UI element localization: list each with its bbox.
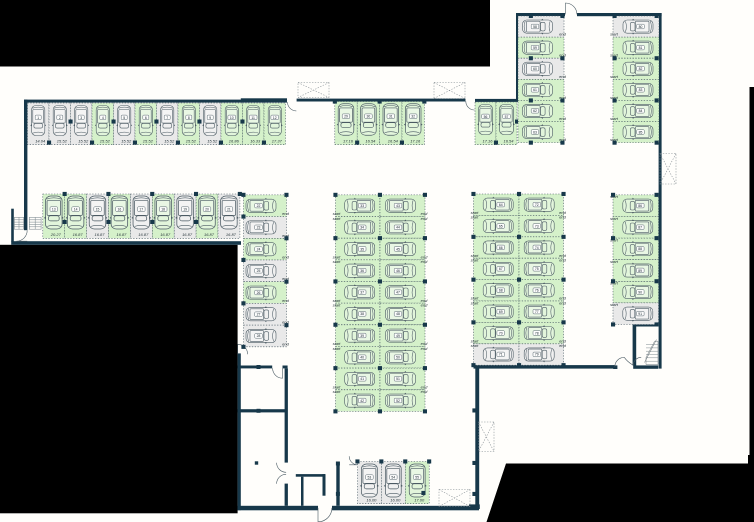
svg-text:end: end bbox=[282, 255, 289, 260]
svg-text:16.87: 16.87 bbox=[160, 232, 171, 237]
svg-text:82: 82 bbox=[639, 67, 643, 71]
svg-text:14: 14 bbox=[74, 207, 78, 211]
svg-text:34: 34 bbox=[360, 226, 364, 230]
svg-text:25: 25 bbox=[257, 269, 261, 273]
svg-text:7: 7 bbox=[166, 116, 168, 120]
svg-text:77: 77 bbox=[535, 310, 539, 314]
svg-text:44: 44 bbox=[396, 226, 400, 230]
svg-text:15.52: 15.52 bbox=[100, 139, 111, 144]
svg-text:end: end bbox=[421, 216, 428, 221]
svg-text:end: end bbox=[421, 302, 428, 307]
svg-text:16.86: 16.86 bbox=[229, 139, 240, 144]
svg-text:24: 24 bbox=[257, 247, 261, 251]
svg-text:end: end bbox=[282, 341, 289, 346]
svg-text:51: 51 bbox=[396, 377, 400, 381]
svg-text:16.87: 16.87 bbox=[94, 232, 105, 237]
svg-text:80: 80 bbox=[639, 25, 643, 29]
svg-text:17.00: 17.00 bbox=[414, 498, 425, 503]
svg-text:13: 13 bbox=[52, 207, 56, 211]
svg-text:15.52: 15.52 bbox=[121, 139, 132, 144]
svg-text:87: 87 bbox=[638, 226, 642, 230]
svg-text:15: 15 bbox=[96, 207, 100, 211]
svg-text:32: 32 bbox=[411, 115, 415, 119]
svg-text:16.87: 16.87 bbox=[138, 232, 149, 237]
svg-text:end: end bbox=[559, 215, 566, 220]
svg-text:91: 91 bbox=[638, 312, 642, 316]
svg-text:17.37: 17.37 bbox=[272, 139, 283, 144]
svg-text:58: 58 bbox=[533, 25, 537, 29]
svg-text:70: 70 bbox=[499, 331, 503, 335]
svg-text:75: 75 bbox=[535, 267, 539, 271]
svg-text:end: end bbox=[282, 298, 289, 303]
svg-text:45: 45 bbox=[396, 247, 400, 251]
svg-text:74: 74 bbox=[535, 246, 539, 250]
svg-text:48: 48 bbox=[396, 312, 400, 316]
svg-text:15.52: 15.52 bbox=[164, 139, 175, 144]
svg-text:46: 46 bbox=[396, 269, 400, 273]
svg-text:start: start bbox=[610, 259, 619, 264]
svg-text:88: 88 bbox=[638, 247, 642, 251]
svg-text:38: 38 bbox=[360, 312, 364, 316]
svg-text:16.87: 16.87 bbox=[73, 232, 84, 237]
svg-text:90: 90 bbox=[638, 290, 642, 294]
svg-text:84: 84 bbox=[639, 109, 643, 113]
svg-text:end: end bbox=[282, 211, 289, 216]
svg-text:69: 69 bbox=[499, 310, 503, 314]
svg-text:76: 76 bbox=[535, 289, 539, 293]
svg-text:start: start bbox=[610, 32, 619, 37]
svg-text:41: 41 bbox=[360, 377, 364, 381]
svg-text:26: 26 bbox=[257, 291, 261, 295]
svg-text:62: 62 bbox=[533, 109, 537, 113]
svg-text:start: start bbox=[471, 300, 480, 305]
svg-text:68: 68 bbox=[499, 289, 503, 293]
svg-text:67: 67 bbox=[499, 267, 503, 271]
svg-text:15.52: 15.52 bbox=[143, 139, 154, 144]
svg-text:66: 66 bbox=[499, 246, 503, 250]
svg-text:end: end bbox=[559, 32, 566, 37]
svg-text:16.54: 16.54 bbox=[388, 139, 399, 144]
svg-text:89: 89 bbox=[638, 269, 642, 273]
svg-text:79: 79 bbox=[535, 353, 539, 357]
svg-text:27: 27 bbox=[257, 313, 261, 317]
svg-text:16.87: 16.87 bbox=[226, 232, 237, 237]
svg-text:17.16: 17.16 bbox=[410, 139, 421, 144]
svg-text:40: 40 bbox=[360, 356, 364, 360]
svg-text:54: 54 bbox=[391, 475, 395, 479]
svg-text:start: start bbox=[333, 346, 342, 351]
svg-text:21: 21 bbox=[227, 207, 231, 211]
svg-text:15.52: 15.52 bbox=[78, 139, 89, 144]
svg-text:10: 10 bbox=[230, 116, 234, 120]
svg-text:start: start bbox=[610, 216, 619, 221]
svg-text:72: 72 bbox=[535, 203, 539, 207]
svg-text:end: end bbox=[559, 343, 566, 348]
svg-text:start: start bbox=[333, 302, 342, 307]
svg-text:65: 65 bbox=[499, 224, 503, 228]
svg-text:73: 73 bbox=[535, 224, 539, 228]
svg-text:52: 52 bbox=[396, 399, 400, 403]
svg-text:18: 18 bbox=[161, 207, 165, 211]
svg-text:start: start bbox=[610, 74, 619, 79]
svg-text:11: 11 bbox=[251, 116, 255, 120]
svg-text:12: 12 bbox=[273, 116, 277, 120]
svg-text:end: end bbox=[421, 259, 428, 264]
svg-text:19: 19 bbox=[183, 207, 187, 211]
svg-text:28: 28 bbox=[257, 334, 261, 338]
svg-text:50: 50 bbox=[396, 356, 400, 360]
svg-text:end: end bbox=[559, 116, 566, 121]
svg-text:36: 36 bbox=[360, 269, 364, 273]
svg-text:39: 39 bbox=[360, 334, 364, 338]
svg-text:64: 64 bbox=[499, 203, 503, 207]
svg-text:17: 17 bbox=[139, 207, 143, 211]
svg-text:17.16: 17.16 bbox=[482, 139, 493, 144]
svg-text:35: 35 bbox=[360, 247, 364, 251]
svg-text:16.87: 16.87 bbox=[204, 232, 215, 237]
svg-text:60: 60 bbox=[533, 67, 537, 71]
svg-text:2: 2 bbox=[59, 116, 61, 120]
svg-text:start: start bbox=[610, 116, 619, 121]
svg-text:15.52: 15.52 bbox=[186, 139, 197, 144]
svg-text:31: 31 bbox=[389, 115, 393, 119]
svg-text:16.87: 16.87 bbox=[116, 232, 127, 237]
svg-text:5: 5 bbox=[123, 116, 125, 120]
svg-text:86: 86 bbox=[638, 204, 642, 208]
svg-text:15.52: 15.52 bbox=[207, 139, 218, 144]
svg-text:63: 63 bbox=[533, 130, 537, 134]
svg-text:78: 78 bbox=[535, 331, 539, 335]
svg-text:85: 85 bbox=[639, 130, 643, 134]
svg-text:17.16: 17.16 bbox=[343, 139, 354, 144]
svg-text:23: 23 bbox=[257, 226, 261, 230]
svg-text:81: 81 bbox=[639, 46, 643, 50]
svg-text:29: 29 bbox=[344, 115, 348, 119]
svg-text:end: end bbox=[559, 258, 566, 263]
svg-text:8: 8 bbox=[188, 116, 190, 120]
svg-text:16.00: 16.00 bbox=[366, 498, 377, 503]
svg-text:start: start bbox=[333, 259, 342, 264]
svg-text:53: 53 bbox=[368, 475, 372, 479]
svg-text:6: 6 bbox=[145, 116, 147, 120]
svg-text:42: 42 bbox=[360, 399, 364, 403]
svg-text:start: start bbox=[471, 258, 480, 263]
svg-text:start: start bbox=[610, 302, 619, 307]
svg-text:15.52: 15.52 bbox=[57, 139, 68, 144]
svg-text:start: start bbox=[333, 389, 342, 394]
svg-text:end: end bbox=[421, 389, 428, 394]
svg-text:33: 33 bbox=[360, 204, 364, 208]
svg-text:16.54: 16.54 bbox=[503, 139, 514, 144]
svg-text:56: 56 bbox=[484, 115, 488, 119]
svg-text:3: 3 bbox=[80, 116, 82, 120]
svg-text:16.54: 16.54 bbox=[365, 139, 376, 144]
svg-text:start: start bbox=[471, 215, 480, 220]
svg-text:4: 4 bbox=[102, 116, 104, 120]
svg-text:37: 37 bbox=[360, 291, 364, 295]
svg-text:end: end bbox=[559, 74, 566, 79]
svg-text:20: 20 bbox=[205, 207, 209, 211]
svg-text:1: 1 bbox=[37, 116, 39, 120]
svg-text:16.33: 16.33 bbox=[250, 139, 261, 144]
svg-text:end: end bbox=[559, 300, 566, 305]
svg-text:49: 49 bbox=[396, 334, 400, 338]
svg-text:16: 16 bbox=[118, 207, 122, 211]
svg-text:71: 71 bbox=[499, 353, 503, 357]
svg-text:30: 30 bbox=[367, 115, 371, 119]
svg-text:start: start bbox=[471, 343, 480, 348]
svg-text:43: 43 bbox=[396, 204, 400, 208]
svg-text:22: 22 bbox=[257, 204, 261, 208]
svg-text:16.87: 16.87 bbox=[182, 232, 193, 237]
svg-text:47: 47 bbox=[396, 291, 400, 295]
svg-text:end: end bbox=[421, 346, 428, 351]
svg-text:start: start bbox=[333, 216, 342, 221]
svg-text:20.27: 20.27 bbox=[50, 232, 62, 237]
svg-text:55: 55 bbox=[415, 475, 419, 479]
svg-text:57: 57 bbox=[505, 115, 509, 119]
svg-text:16.00: 16.00 bbox=[390, 498, 401, 503]
svg-text:61: 61 bbox=[533, 88, 537, 92]
svg-text:14.04: 14.04 bbox=[35, 139, 46, 144]
svg-text:59: 59 bbox=[533, 46, 537, 50]
svg-text:83: 83 bbox=[639, 88, 643, 92]
svg-text:9: 9 bbox=[209, 116, 211, 120]
